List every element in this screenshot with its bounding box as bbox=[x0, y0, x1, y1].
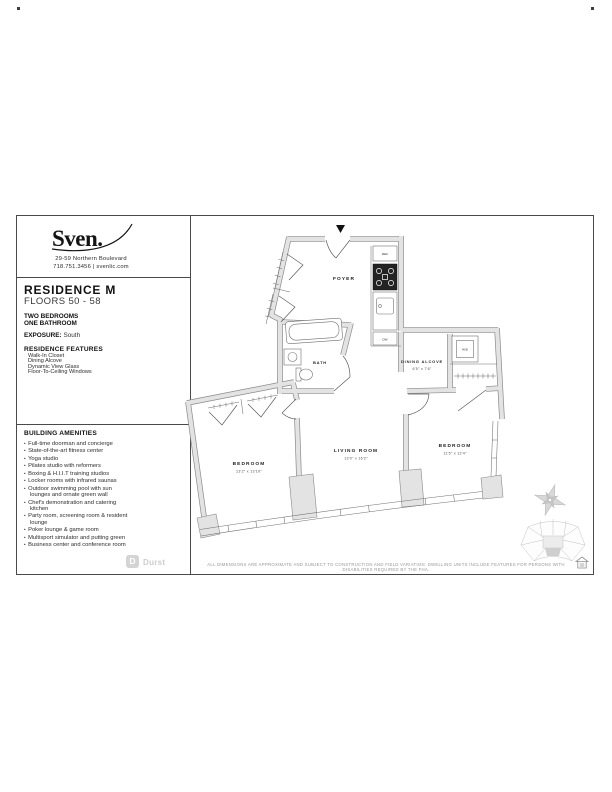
amenity-item: Pilates studio with reformers bbox=[24, 463, 130, 469]
amenities-heading: BUILDING AMENITIES bbox=[24, 430, 97, 437]
dining-alcove-label: DINING ALCOVE bbox=[401, 359, 443, 364]
bedroom2-label: BEDROOM bbox=[439, 443, 472, 449]
dishwasher-label: DW bbox=[382, 338, 387, 342]
amenity-item: Poker lounge & game room bbox=[24, 527, 130, 533]
faucet bbox=[379, 305, 382, 308]
residence-floors: FLOORS 50 - 58 bbox=[24, 296, 101, 307]
amenities-list: Full-time doorman and concierge State-of… bbox=[24, 441, 130, 550]
amenity-item: Party room, screening room & resident lo… bbox=[24, 513, 130, 526]
exposure-row: EXPOSURE: South bbox=[24, 332, 80, 339]
exposure-label: EXPOSURE: bbox=[24, 332, 62, 339]
window-pier bbox=[197, 514, 220, 538]
bathtub bbox=[285, 318, 342, 344]
registration-mark bbox=[591, 7, 594, 10]
compass-icon bbox=[530, 480, 570, 520]
toilet-bowl bbox=[300, 369, 313, 380]
address-line1: 29-59 Northern Boulevard bbox=[16, 256, 166, 264]
floor-plan: REF DW W/D FOYER BATH DINING ALCOVE 6'5"… bbox=[160, 215, 600, 577]
brand-logo: Sven. bbox=[42, 221, 142, 258]
disclaimer-text: ALL DIMENSIONS ARE APPROXIMATE AND SUBJE… bbox=[200, 562, 572, 572]
amenity-item: Locker rooms with infrared saunas bbox=[24, 478, 130, 484]
equal-housing-icon bbox=[575, 556, 589, 570]
bath-sink-basin bbox=[288, 353, 297, 362]
amenity-item: Chef's demonstration and catering kitche… bbox=[24, 500, 130, 513]
brand-logo-text: Sven. bbox=[52, 226, 103, 251]
feature-item: Floor-To-Ceiling Windows bbox=[24, 370, 130, 375]
keyplan-unit-highlight bbox=[545, 548, 561, 556]
residence-config: TWO BEDROOMS ONE BATHROOM bbox=[24, 313, 78, 328]
window-band bbox=[200, 421, 498, 536]
registration-mark bbox=[17, 7, 20, 10]
config-baths: ONE BATHROOM bbox=[24, 320, 78, 327]
refrigerator-label: REF bbox=[382, 252, 388, 256]
amenity-item: Business center and conference room bbox=[24, 542, 130, 548]
features-heading: RESIDENCE FEATURES bbox=[24, 346, 103, 353]
durst-wordmark: Durst bbox=[143, 558, 165, 567]
living-room-label: LIVING ROOM bbox=[334, 448, 378, 454]
exposure-value: South bbox=[63, 332, 80, 339]
amenity-item: Yoga studio bbox=[24, 456, 130, 462]
bedroom2-dims: 11'5" x 12'4" bbox=[443, 452, 467, 456]
range bbox=[373, 264, 397, 290]
entry-arrow-icon bbox=[336, 225, 345, 233]
amenity-item: Full-time doorman and concierge bbox=[24, 441, 130, 447]
washer-dryer-label: W/D bbox=[462, 348, 469, 352]
residence-title: RESIDENCE M bbox=[24, 283, 116, 297]
amenity-item: Multisport simulator and putting green bbox=[24, 535, 130, 541]
living-room-dims: 13'0" x 16'2" bbox=[344, 457, 368, 461]
amenity-item: Outdoor swimming pool with sun lounges a… bbox=[24, 486, 130, 499]
brand-address: 29-59 Northern Boulevard 718.751.3456 | … bbox=[16, 256, 166, 271]
amenity-item: State-of-the-art fitness center bbox=[24, 448, 130, 454]
config-beds: TWO BEDROOMS bbox=[24, 313, 78, 320]
window-pier bbox=[481, 475, 503, 499]
floorplan-sheet: Sven. 29-59 Northern Boulevard 718.751.3… bbox=[0, 0, 612, 792]
keyplan-icon bbox=[521, 519, 585, 561]
dining-alcove-dims: 6'5" x 7'6" bbox=[412, 367, 431, 371]
durst-logo-initial: D bbox=[129, 556, 135, 566]
bath-label: BATH bbox=[313, 360, 327, 365]
amenity-item: Boxing & H.I.I.T training studios bbox=[24, 471, 130, 477]
durst-logo: D bbox=[126, 555, 139, 568]
foyer-label: FOYER bbox=[333, 276, 355, 282]
address-line2: 718.751.3456 | svenlic.com bbox=[16, 264, 166, 272]
bedroom1-label: BEDROOM bbox=[233, 461, 266, 467]
bedroom1-dims: 13'2" x 13'10" bbox=[236, 470, 262, 474]
features-list: Walk-In Closet Dining Alcove Dynamic Vie… bbox=[24, 354, 130, 376]
